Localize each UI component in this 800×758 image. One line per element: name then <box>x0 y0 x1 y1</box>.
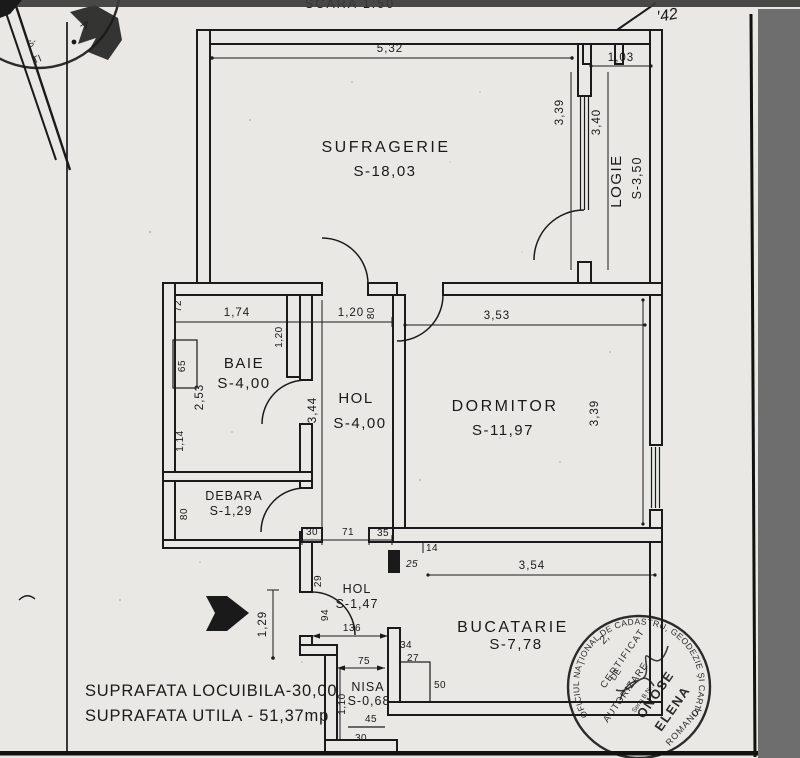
dim-fixture-width: 50 <box>434 680 446 691</box>
cadastru-stamp: OFICIUL NAŢIONAL DE CADASTRU, GEODEZIE Ş… <box>0 0 710 758</box>
wall-baie-left <box>163 283 175 548</box>
summary-line-1: SUPRAFATA LOCUIBILA-30,00 <box>85 682 337 700</box>
dim-baie-fixture: 65 <box>177 360 188 372</box>
dim-baie-corner: 72 <box>173 300 184 312</box>
dim-hol2-width: 136 <box>343 623 361 634</box>
wall-logie-stub-1 <box>583 44 591 64</box>
room-label-dormitor: DORMITOR <box>452 398 559 415</box>
room-area-logie: S-3,50 <box>630 157 644 200</box>
wall-hol2-left-lower <box>300 636 312 645</box>
room-area-debara: S-1,29 <box>210 504 253 518</box>
wall-right-upper <box>650 30 662 445</box>
paper-crease-2 <box>5 10 56 160</box>
dim-hol2-corner: 29 <box>313 575 324 587</box>
room-area-hol1: S-4,00 <box>333 415 386 432</box>
dim-nisa-inner: 45 <box>365 714 377 725</box>
room-area-dormitor: S-11,97 <box>472 422 534 439</box>
dim-dorm-right-height: 3,39 <box>589 400 601 426</box>
room-label-logie: LOGIE <box>608 154 625 207</box>
wall-baie-shaft <box>287 295 300 377</box>
wall-baie-hol-3 <box>300 481 312 488</box>
wall-sufragerie-left <box>197 30 210 288</box>
wall-middle-2 <box>368 283 397 295</box>
room-label-hol2: HOL <box>343 582 372 596</box>
dim-hol2-door: 94 <box>320 609 331 621</box>
floor-plan-drawing: 5,32 1,03 3,39 3,40 72 1,74 1,20 80 1,20… <box>0 0 800 758</box>
wall-middle-1 <box>163 283 322 295</box>
handwritten-note: ′42 <box>656 6 680 26</box>
dim-seg-25: 25 <box>405 559 418 570</box>
room-label-sufragerie: SUFRAGERIE <box>321 139 450 156</box>
room-area-hol2: S-1,47 <box>336 597 379 611</box>
dim-baie-door-height: 1,20 <box>274 326 285 347</box>
room-label-hol1: HOL <box>338 390 373 407</box>
page-right-edge <box>751 14 755 757</box>
room-label-bucatarie: BUCATARIE <box>457 619 569 636</box>
svg-text:OFICIUL NAŢIONAL DE CADASTRU,: OFICIUL NAŢIONAL DE CADASTRU, GEODEZIE Ş… <box>0 0 707 720</box>
room-label-nisa: NISA <box>351 680 384 694</box>
door-sufragerie-logie <box>534 210 584 260</box>
dim-baie-left-lower: 1,14 <box>175 430 186 451</box>
dim-debara-left: 80 <box>179 508 190 520</box>
dim-logie-height: 3,40 <box>591 109 603 135</box>
dim-hol-top-width: 1,20 <box>338 307 364 319</box>
handwritten-slash <box>617 3 656 30</box>
entrance-arrow <box>206 596 249 631</box>
dim-nisa-height: 1,10 <box>337 693 348 714</box>
door-sufragerie-hol <box>322 238 368 284</box>
room-area-baie: S-4,00 <box>217 375 270 392</box>
wall-debara-bottom <box>163 540 312 548</box>
wall-baie-hol-2 <box>300 424 312 472</box>
dim-hol-top-wall: 80 <box>366 307 377 319</box>
top-scan-band <box>0 0 800 7</box>
paper-crease-1 <box>16 6 70 170</box>
scanned-floor-plan-page: 5,32 1,03 3,39 3,40 72 1,74 1,20 80 1,20… <box>0 0 800 758</box>
dim-seg-71: 71 <box>342 527 354 538</box>
wall-middle-3 <box>443 283 662 295</box>
room-labels: SUFRAGERIE S-18,03 LOGIE S-3,50 BAIE S-4… <box>205 139 644 708</box>
room-area-nisa: S-0,68 <box>348 694 391 708</box>
dim-nisa-bottom: 30 <box>355 733 367 744</box>
kitchen-fixture <box>400 662 430 702</box>
dim-seg-27: 27 <box>407 653 419 664</box>
dim-buc-width: 3,54 <box>519 560 545 572</box>
wall-bucatarie-door-stub <box>388 550 400 573</box>
wall-hol-dormitor <box>393 295 405 528</box>
summary-line-2: SUPRAFATA UTILA - 51,37mp <box>85 707 329 725</box>
stamp-ring-text: OFICIUL NAŢIONAL DE CADASTRU, GEODEZIE Ş… <box>0 0 707 720</box>
dim-seg-35: 35 <box>377 528 389 539</box>
room-area-bucatarie: S-7,78 <box>489 636 542 653</box>
dim-entry-recess: 1,29 <box>257 611 269 637</box>
dim-suf-right-height: 3,39 <box>554 99 566 125</box>
wall-entry-corner <box>300 645 337 655</box>
area-summary: SUPRAFATA LOCUIBILA-30,00 SUPRAFATA UTIL… <box>85 682 337 725</box>
scanner-background <box>758 9 800 758</box>
dim-seg-14: 14 <box>426 543 438 554</box>
room-label-baie: BAIE <box>224 355 264 372</box>
wall-dormitor-bottom <box>393 528 662 542</box>
dim-baie-left-height: 2,53 <box>194 384 206 410</box>
door-debara <box>261 488 305 532</box>
wall-top <box>197 30 662 44</box>
dim-dorm-width: 3,53 <box>484 310 510 322</box>
wall-hol2-left-upper <box>300 542 312 592</box>
pen-mark <box>19 596 35 600</box>
wall-baie-bottom <box>163 472 312 481</box>
dim-baie-width: 1,74 <box>224 307 250 319</box>
room-area-sufragerie: S-18,03 <box>353 163 416 180</box>
wall-nisa-column-left <box>325 655 337 752</box>
wall-baie-hol-1 <box>300 295 312 380</box>
dim-logie-width: 1,03 <box>608 52 634 64</box>
dim-top-width: 5,32 <box>377 43 403 55</box>
dim-seg-34: 34 <box>400 640 412 651</box>
dim-hol-height: 3,44 <box>307 397 319 423</box>
page-bottom-edge <box>0 751 758 756</box>
dim-nisa-width: 75 <box>358 656 370 667</box>
dim-seg-30: 30 <box>306 527 318 538</box>
room-label-debara: DEBARA <box>205 489 262 503</box>
